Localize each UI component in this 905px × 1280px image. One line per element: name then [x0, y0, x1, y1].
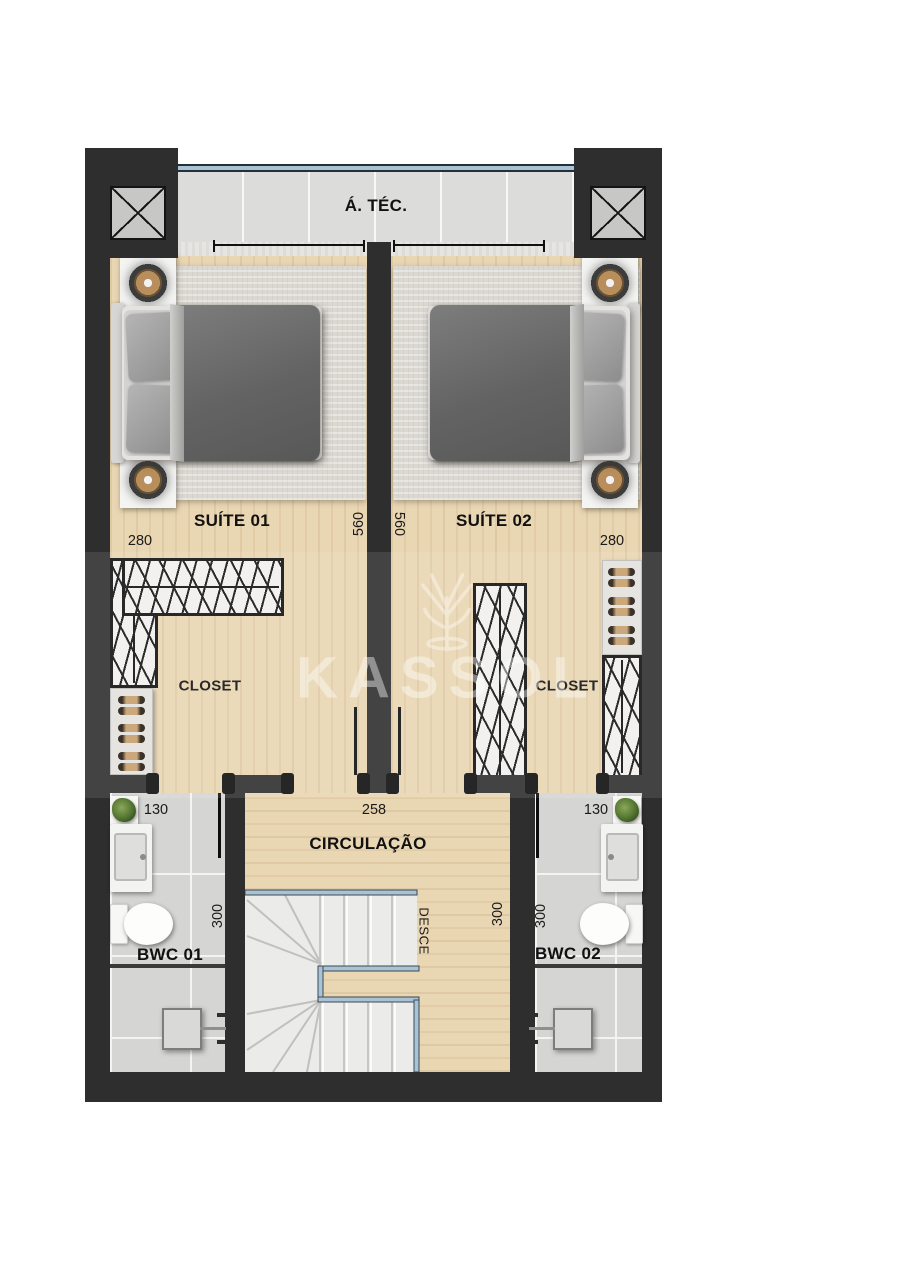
bwc-02-shower-partition	[535, 964, 642, 968]
shower-tick	[529, 1040, 538, 1044]
bwc-02-label: BWC 02	[535, 944, 601, 964]
closet-02-rack-island	[473, 583, 527, 780]
bwc-01-faucet	[140, 854, 146, 860]
suite-01-duvet	[176, 305, 320, 461]
bwc-02-shower-arm	[529, 1027, 555, 1030]
wall-bottom	[85, 1072, 662, 1102]
dim-suite-01-width: 280	[128, 533, 152, 549]
closet-01-label: CLOSET	[179, 678, 242, 695]
closet-01-rack-horizontal	[122, 558, 284, 616]
shoe-pair	[608, 597, 635, 616]
wall-right	[642, 256, 662, 1102]
dim-suite-02-opening: 560	[391, 512, 407, 536]
shoe-pair	[118, 752, 145, 771]
door-jamb	[525, 773, 538, 794]
circulation-label: CIRCULAÇÃO	[309, 834, 426, 854]
plant-icon	[112, 798, 136, 822]
wall-segment	[234, 775, 285, 793]
suite-02-lamp-top	[590, 263, 630, 303]
dim-circulation-opening: 258	[362, 802, 386, 818]
dim-bwc-01-depth: 300	[210, 904, 226, 928]
shoe-pair	[118, 724, 145, 743]
suite-01-lamp-bottom	[128, 460, 168, 500]
dim-bwc-01-door: 130	[144, 802, 168, 818]
wall-segment	[607, 775, 642, 793]
dimension-line-left	[213, 244, 365, 246]
bwc-02-faucet	[608, 854, 614, 860]
dimension-line-right	[393, 244, 545, 246]
bwc-01-shower-arm	[200, 1027, 226, 1030]
dim-bwc-02-door: 130	[584, 802, 608, 818]
door-leaf-bwc-01	[218, 793, 221, 858]
bwc-01-shower	[162, 1008, 202, 1050]
wall-segment	[475, 775, 528, 793]
tech-area-glass-line	[178, 164, 574, 172]
dim-bwc-02-depth: 300	[533, 904, 549, 928]
wall-left	[85, 148, 110, 1102]
stairs-direction-label: DESCE	[417, 907, 432, 954]
shaft-x-left	[110, 186, 166, 240]
suite-01-lamp-top	[128, 263, 168, 303]
shower-tick	[217, 1040, 226, 1044]
dim-circulation-depth: 300	[490, 902, 506, 926]
shoe-pair	[608, 626, 635, 645]
bwc-02-shower	[553, 1008, 593, 1050]
wall-divider-bwc02	[510, 793, 535, 1072]
wall-central	[367, 242, 391, 793]
door-jamb	[222, 773, 235, 794]
suite-02-label: SUÍTE 02	[456, 511, 532, 531]
floor-plan-canvas: DESCE Á. TÉC. SUÍTE 01 SUÍTE 02 CLOSET C…	[0, 0, 905, 1280]
tech-area-label: Á. TÉC.	[345, 196, 408, 216]
door-leaf-bwc-02	[536, 793, 539, 858]
door-jamb	[464, 773, 477, 794]
door-jamb	[386, 773, 399, 794]
shower-tick	[217, 1013, 226, 1017]
door-jamb	[281, 773, 294, 794]
plant-icon	[615, 798, 639, 822]
suite-01-label: SUÍTE 01	[194, 511, 270, 531]
shoe-pair	[118, 696, 145, 715]
door-leaf-suite-02	[398, 707, 401, 775]
wall-divider-bwc01	[225, 793, 245, 1072]
bwc-01-label: BWC 01	[137, 945, 203, 965]
suite-02-lamp-bottom	[590, 460, 630, 500]
dim-suite-02-width: 280	[600, 533, 624, 549]
dim-suite-01-opening: 560	[351, 512, 367, 536]
suite-02-duvet	[430, 305, 578, 461]
door-jamb	[596, 773, 609, 794]
shaft-x-right	[590, 186, 646, 240]
staircase	[245, 888, 430, 1072]
door-jamb	[146, 773, 159, 794]
door-leaf-suite-01	[354, 707, 357, 775]
shoe-pair	[608, 568, 635, 587]
door-jamb	[357, 773, 370, 794]
closet-02-label: CLOSET	[536, 678, 599, 695]
closet-02-rack-wall	[602, 655, 642, 778]
shower-tick	[529, 1013, 538, 1017]
